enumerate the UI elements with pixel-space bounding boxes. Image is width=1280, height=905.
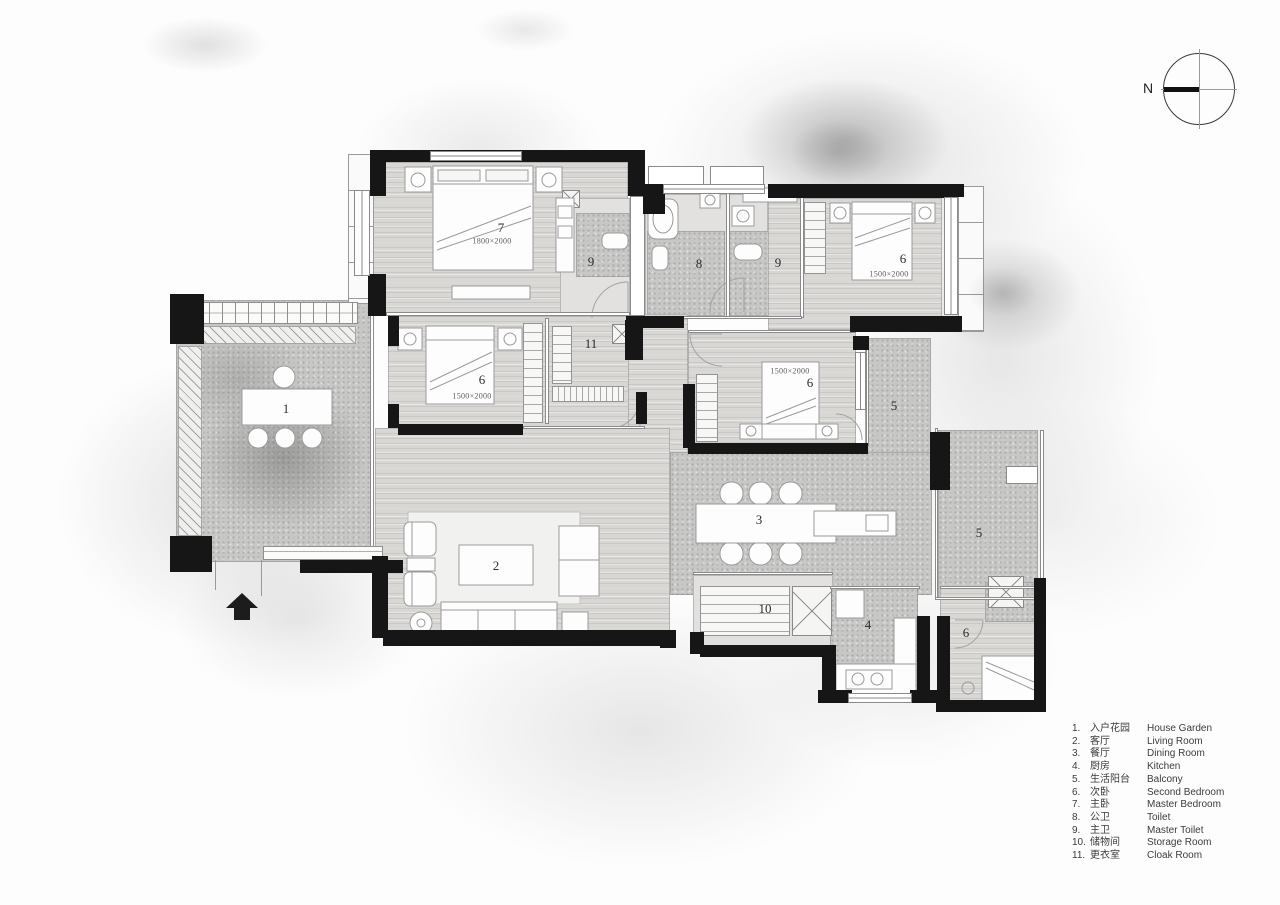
room-label-master-toilet: 9 [588,254,595,270]
legend-row: 7.主卧Master Bedroom [1072,799,1224,812]
entrance-arrow [226,593,258,620]
legend-row: 11.更衣室Cloak Room [1072,850,1224,863]
room-label-second-bedroom-top: 6 [900,251,907,267]
nightstand [398,328,422,350]
nightstand [830,203,850,223]
north-compass: N [1163,53,1235,125]
nightstand [536,167,562,192]
legend-row: 5.生活阳台Balcony [1072,774,1224,787]
nightstand [498,328,522,350]
room-label-second-bedroom-mid: 6 [479,372,486,388]
nightstand [915,203,935,223]
window [855,352,866,410]
dining-chair [779,482,802,505]
dining-chair [779,542,802,565]
legend-row: 1.入户花园House Garden [1072,723,1224,736]
room-label-master-bedroom: 7 [498,220,505,236]
compass-north-pointer [1164,87,1199,92]
legend-row: 9.主卫Master Toilet [1072,825,1224,838]
armchair [404,522,436,556]
legend-row: 10.储物间Storage Room [1072,837,1224,850]
room-label-balcony-right: 5 [976,525,983,541]
legend-row: 6.次卧Second Bedroom [1072,787,1224,800]
room-label-storage-room: 10 [759,601,772,617]
room-label-dining-room: 3 [756,512,763,528]
bed-top-right [852,202,912,280]
bed-dim-right: 1500×2000 [770,367,809,376]
nightstand [740,424,762,439]
window [663,184,765,194]
dining-chair [720,542,743,565]
legend-row: 3.餐厅Dining Room [1072,748,1224,761]
island-bar [814,511,896,536]
dining-chair [720,482,743,505]
chaise [559,526,599,596]
room-label-kitchen: 4 [865,617,872,633]
room-label-toilet: 8 [696,256,703,272]
room-label-cloak-room: 11 [585,336,598,352]
garden-stool [275,428,295,448]
vanity [556,198,574,272]
bed-dim-top: 1500×2000 [869,270,908,279]
compass-north-label: N [1143,80,1153,96]
kitchen-sink-column [894,618,916,664]
legend: 1.入户花园House Garden 2.客厅Living Room 3.餐厅D… [1072,723,1224,863]
toilet [734,244,762,260]
door-arc [836,414,862,440]
window [848,693,912,703]
room-label-second-bedroom-bottom: 6 [963,625,970,641]
legend-row: 2.客厅Living Room [1072,736,1224,749]
window [430,151,522,161]
garden-stool [273,366,295,388]
toilet [602,233,628,249]
master-bed [433,166,533,299]
door-arc [690,334,722,366]
garden-stool [302,428,322,448]
bed-dim-mid: 1500×2000 [452,392,491,401]
window [944,197,958,315]
bed-dim-master: 1800×2000 [472,237,511,246]
garden-stool [248,428,268,448]
side-table [407,558,435,571]
legend-row: 4.厨房Kitchen [1072,761,1224,774]
room-label-living-room: 2 [493,558,500,574]
room-label-balcony-side: 5 [891,398,898,414]
room-label-house-garden: 1 [283,401,290,417]
washbasin [700,192,720,208]
legend-row: 8.公卫Toilet [1072,812,1224,825]
room-label-second-bedroom-right: 6 [807,375,814,391]
window [354,190,370,276]
washbasin [732,206,754,226]
entry-bench [263,546,383,560]
armchair [404,572,436,606]
toilet [652,246,668,270]
dining-chair [749,542,772,565]
dining-chair [749,482,772,505]
floor-plan-page: { "compass": { "north_label": "N" }, "pl… [0,0,1280,905]
kitchen-cabinet [836,590,864,618]
nightstand [405,167,431,192]
room-label-master-toilet-2: 9 [775,255,782,271]
nightstand [816,424,838,439]
